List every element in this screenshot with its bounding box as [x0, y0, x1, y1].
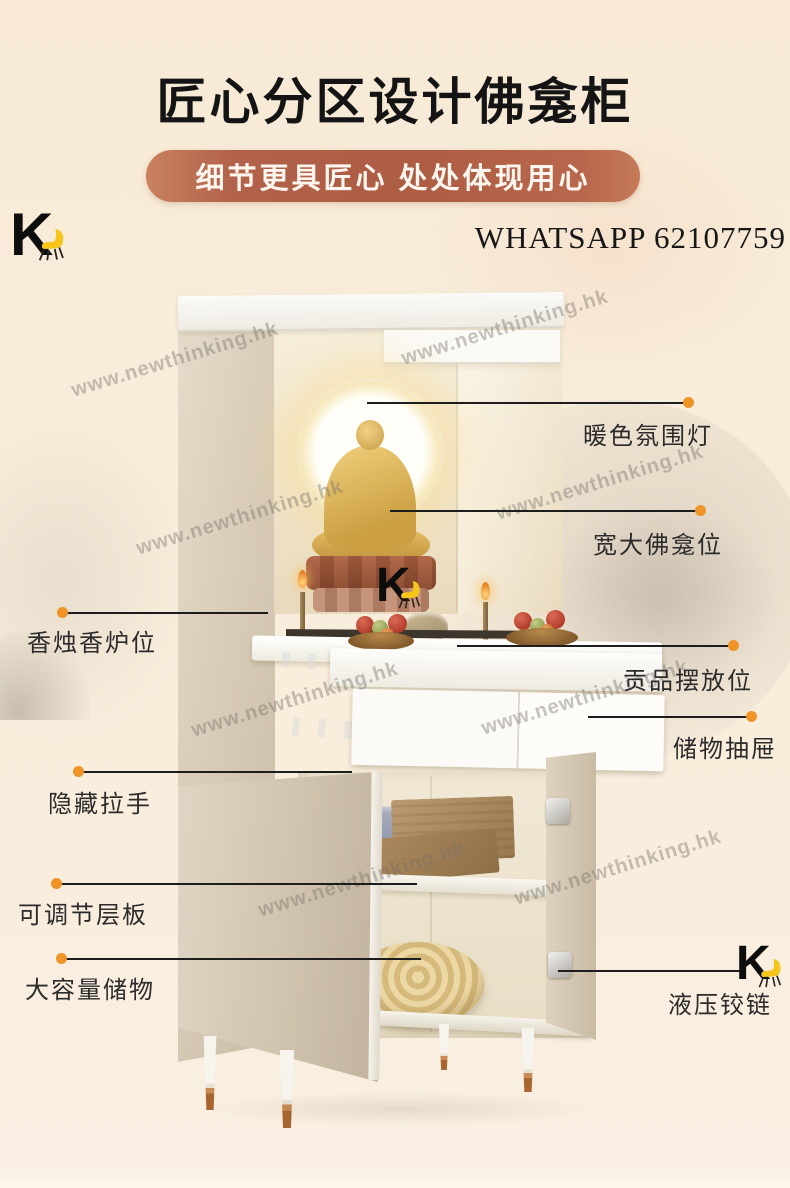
callout-dot-incense: [57, 607, 68, 618]
callout-label-niche: 宽大佛龛位: [593, 525, 723, 560]
callout-label-hinge: 液压铰链: [668, 985, 772, 1020]
callout-dot-handle: [73, 766, 84, 777]
callout-label-handle: 隐藏拉手: [48, 784, 152, 819]
brand-logo-watermark: K: [376, 566, 411, 605]
subtitle-banner: 细节更具匠心 处处体现用心: [146, 150, 640, 202]
callout-dot-warm-light: [683, 397, 694, 408]
callout-line-offering: [457, 645, 733, 647]
callout-dot-shelf: [51, 878, 62, 889]
door-hinge-bottom: [548, 952, 572, 978]
page-title: 匠心分区设计佛龛柜: [0, 62, 790, 134]
whatsapp-contact: WHATSAPP 62107759: [475, 220, 786, 256]
callout-label-storage: 大容量储物: [25, 970, 155, 1005]
callout-line-hinge: [558, 970, 740, 972]
candle-flame-right: [481, 582, 490, 600]
shrine-right-wall: [458, 330, 562, 614]
candle-flame-left: [298, 570, 307, 588]
fruit-bowl-left: [348, 632, 414, 650]
product-poster: 匠心分区设计佛龛柜 细节更具匠心 处处体现用心 WHATSAPP 6210775…: [0, 0, 790, 1188]
callout-label-offering: 贡品摆放位: [623, 661, 753, 696]
callout-line-shelf: [56, 883, 417, 885]
floor-shadow: [200, 1092, 600, 1126]
buddha-head: [356, 420, 384, 450]
callout-line-storage: [61, 958, 421, 960]
callout-dot-niche: [695, 505, 706, 516]
callout-line-niche: [390, 510, 700, 512]
callout-label-warm-light: 暖色氛围灯: [583, 416, 713, 451]
brand-logo: K: [736, 944, 771, 983]
door-hinge-top: [546, 798, 570, 824]
callout-dot-offering: [728, 640, 739, 651]
chair-icon: [36, 228, 66, 261]
callout-label-drawer: 储物抽屉: [673, 729, 777, 764]
cabinet-door-left-open: [178, 768, 378, 1082]
shrine-back-corner: [456, 344, 458, 612]
callout-label-incense: 香烛香炉位: [27, 623, 157, 658]
chair-icon: [396, 580, 422, 609]
subtitle-text: 细节更具匠心 处处体现用心: [195, 155, 590, 197]
callout-label-shelf: 可调节层板: [18, 895, 148, 930]
callout-dot-storage: [56, 953, 67, 964]
callout-line-warm-light: [367, 402, 688, 404]
callout-line-handle: [78, 771, 352, 773]
brand-logo: K: [10, 210, 53, 259]
chair-icon: [756, 958, 783, 988]
callout-line-drawer: [588, 716, 751, 718]
callout-line-incense: [62, 612, 268, 614]
callout-dot-drawer: [746, 711, 757, 722]
